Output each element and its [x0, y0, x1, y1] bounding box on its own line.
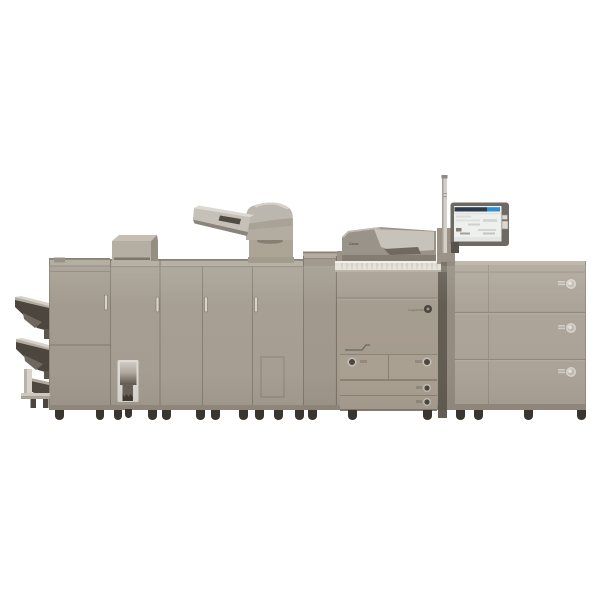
- svg-text:Canon: Canon: [349, 242, 359, 246]
